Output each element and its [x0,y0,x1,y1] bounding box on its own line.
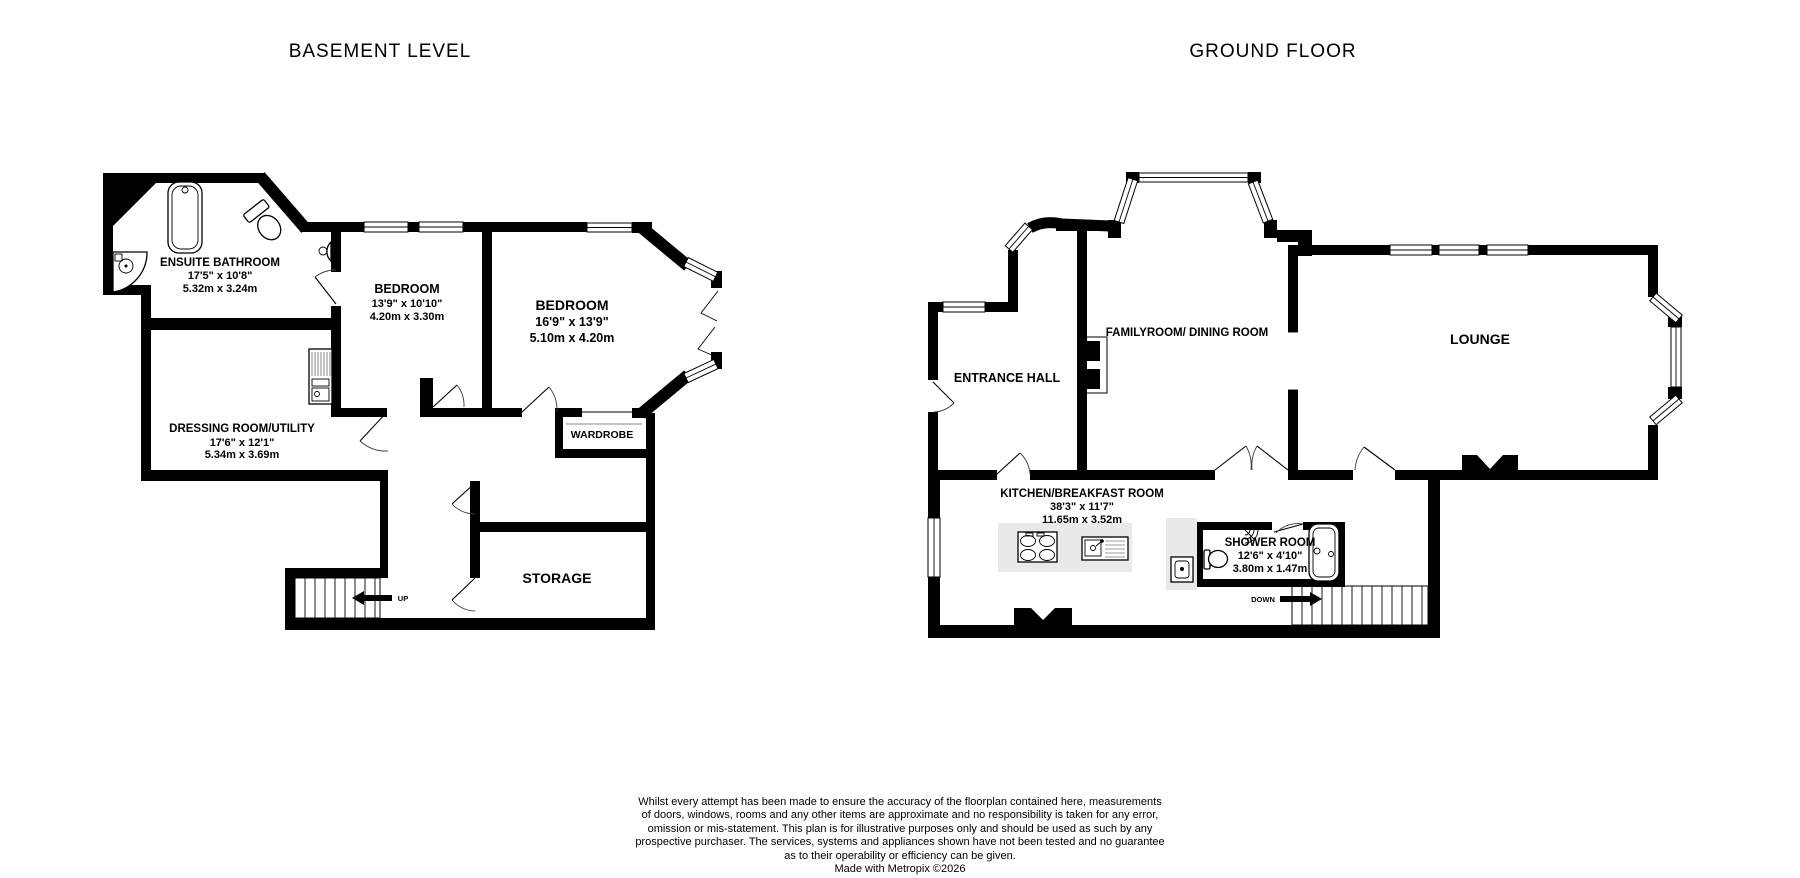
disclaimer-line-3: omission or mis-statement. This plan is … [648,823,1153,835]
storage-label: STORAGE [523,570,592,586]
down-label: DOWN [1251,595,1275,604]
dressing-room-imperial: 17'6" x 12'1" [210,437,275,449]
shower-room-label: SHOWER ROOM [1225,537,1316,549]
dressing-room-metric: 5.34m x 3.69m [205,449,280,461]
sink-icon [1082,537,1128,560]
ensuite-bathroom-imperial: 17'5" x 10'8" [188,270,253,282]
shower-toilet-icon [1204,550,1228,569]
basement-plan: UP ENSUITE BATHROOM 17'5" x 10'8" 5.32m … [103,173,722,630]
up-label: UP [398,594,408,603]
floorplan-page: BASEMENT LEVEL GROUND FLOOR [0,0,1800,878]
bedroom-2-label: BEDROOM [535,297,608,313]
disclaimer-line-2: of doors, windows, rooms and any other i… [642,809,1159,821]
ground-doors [933,382,1395,533]
hob-icon [1018,532,1057,562]
familyroom-dining-label: FAMILYROOM/ DINING ROOM [1106,327,1269,339]
kitchen-fireplace-icon [1014,608,1072,625]
disclaimer-line-4: prospective purchaser. The services, sys… [635,836,1164,848]
appliance-icon [1171,557,1193,582]
kitchen-imperial: 38'3" x 11'7" [1050,501,1114,513]
ensuite-bathroom-metric: 5.32m x 3.24m [183,283,258,295]
bedroom-2-metric: 5.10m x 4.20m [530,331,615,345]
bathtub-icon [168,182,202,253]
ensuite-bathroom-label: ENSUITE BATHROOM [160,257,280,269]
wardrobe-label: WARDROBE [571,429,633,441]
disclaimer: Whilst every attempt has been made to en… [635,796,1164,875]
bay-french-doors [698,291,718,356]
ground-floor-title: GROUND FLOOR [1189,41,1356,62]
basement-title: BASEMENT LEVEL [289,41,472,62]
kitchen-metric: 11.65m x 3.52m [1042,514,1122,526]
ground-floor-plan: DOWN [928,172,1682,638]
basement-stairs: UP [295,578,408,618]
lounge-fireplace-icon [1462,455,1518,480]
boiler-unit-icon [309,349,332,404]
kitchen-fixtures [998,518,1197,590]
ground-stairs: DOWN [1251,586,1428,625]
floorplan-canvas: BASEMENT LEVEL GROUND FLOOR [0,0,1800,878]
lounge-label: LOUNGE [1450,331,1510,347]
down-arrow-icon [1280,592,1322,606]
dressing-room-label: DRESSING ROOM/UTILITY [169,423,315,435]
disclaimer-line-1: Whilst every attempt has been made to en… [638,796,1162,808]
bedroom-2-imperial: 16'9" x 13'9" [535,315,608,329]
basin-icon [319,242,331,261]
shower-room-metric: 3.80m x 1.47m [1233,563,1308,575]
bedroom-1-imperial: 13'9" x 10'10" [372,298,443,310]
entrance-hall-label: ENTRANCE HALL [954,371,1061,385]
disclaimer-line-5: as to their operability or efficiency ca… [784,850,1016,862]
shower-bath-icon [1309,524,1339,581]
up-arrow-icon [352,591,392,605]
bedroom-1-metric: 4.20m x 3.30m [370,311,445,323]
metropix-credit: Made with Metropix ©2026 [834,863,965,875]
kitchen-label: KITCHEN/BREAKFAST ROOM [1000,488,1164,500]
shower-room-imperial: 12'6" x 4'10" [1238,550,1303,562]
bedroom-1-label: BEDROOM [374,282,439,296]
